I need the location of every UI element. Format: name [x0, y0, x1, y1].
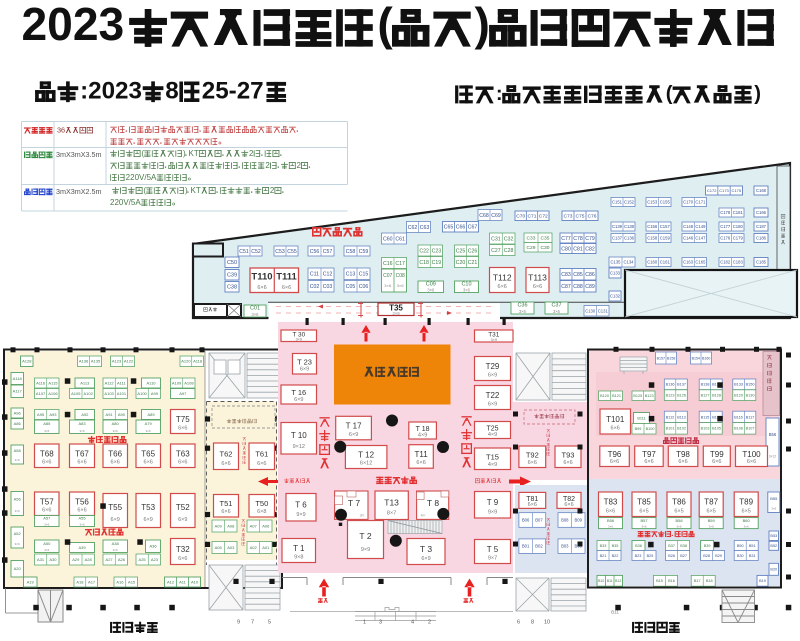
- svg-text:T 8: T 8: [427, 498, 439, 508]
- svg-text:A05: A05: [215, 545, 223, 550]
- svg-text:B133: B133: [734, 383, 743, 387]
- svg-text:C170: C170: [683, 200, 694, 205]
- svg-text:T68: T68: [40, 449, 54, 458]
- svg-text:T22: T22: [486, 391, 500, 400]
- svg-text:T87: T87: [704, 498, 718, 507]
- svg-text:9: 9: [237, 620, 240, 626]
- svg-text:T89: T89: [739, 498, 753, 507]
- svg-text:6×6: 6×6: [42, 460, 51, 466]
- svg-text:C134: C134: [623, 260, 634, 265]
- svg-text:B117: B117: [746, 415, 755, 419]
- svg-text:): ): [754, 83, 761, 105]
- svg-text:C63: C63: [420, 225, 430, 231]
- svg-text:3mX3mX2.5m: 3mX3mX2.5m: [56, 187, 102, 196]
- svg-text:2: 2: [265, 161, 270, 170]
- svg-text:C62: C62: [408, 225, 418, 231]
- svg-text:T 7: T 7: [348, 498, 360, 508]
- svg-text:5: 5: [268, 620, 271, 626]
- svg-text:C138: C138: [624, 224, 635, 229]
- svg-text:A100: A100: [137, 391, 147, 396]
- svg-text:6×6: 6×6: [564, 502, 573, 508]
- svg-text:B158: B158: [667, 356, 675, 360]
- svg-text:A31: A31: [37, 557, 45, 562]
- svg-text:T 2: T 2: [359, 531, 371, 541]
- svg-text:9×9: 9×9: [488, 509, 497, 515]
- svg-text:B157: B157: [657, 356, 665, 360]
- svg-text:C178: C178: [720, 210, 731, 215]
- svg-text:C77: C77: [561, 236, 571, 242]
- svg-text:6×9: 6×9: [111, 517, 120, 523]
- svg-text:C168: C168: [756, 188, 767, 193]
- svg-text:A56: A56: [14, 497, 22, 502]
- svg-text:T61: T61: [255, 449, 268, 458]
- svg-text:A105: A105: [71, 391, 81, 396]
- svg-text:C161: C161: [660, 260, 671, 265]
- svg-text:A115: A115: [48, 380, 58, 385]
- svg-text:T 5: T 5: [487, 545, 499, 554]
- svg-text:B121: B121: [612, 394, 621, 398]
- svg-text:B160: B160: [702, 356, 710, 360]
- svg-text:C148: C148: [683, 224, 694, 229]
- svg-text:6×6: 6×6: [178, 425, 187, 431]
- svg-text:A108: A108: [184, 380, 194, 385]
- svg-text:T57: T57: [40, 497, 54, 506]
- svg-text:A97: A97: [179, 391, 187, 396]
- svg-text:T62: T62: [220, 449, 233, 458]
- svg-text:A136: A136: [79, 359, 89, 364]
- svg-text:C19: C19: [432, 260, 442, 266]
- svg-text:A16: A16: [116, 579, 124, 584]
- svg-text:6×6: 6×6: [178, 556, 187, 562]
- svg-text:C158: C158: [647, 236, 658, 241]
- svg-text:3×6: 3×6: [79, 429, 84, 433]
- svg-text:3×6: 3×6: [44, 548, 49, 552]
- svg-text:C31: C31: [491, 236, 501, 242]
- svg-text:T29: T29: [486, 362, 500, 371]
- svg-text:A135: A135: [91, 359, 101, 364]
- svg-text:T 1: T 1: [293, 544, 305, 553]
- svg-text:T 17: T 17: [346, 422, 362, 431]
- svg-text:B26: B26: [668, 554, 675, 558]
- svg-text:B52: B52: [770, 544, 777, 548]
- svg-text:C171: C171: [695, 200, 706, 205]
- svg-text:C03: C03: [323, 284, 333, 290]
- svg-text:C133: C133: [610, 271, 621, 276]
- svg-text:C51: C51: [239, 249, 249, 255]
- svg-text:2×9: 2×9: [392, 311, 400, 316]
- svg-text:3×6: 3×6: [771, 506, 776, 510]
- svg-text:3×9: 3×9: [491, 338, 497, 342]
- svg-text:B57: B57: [640, 518, 648, 523]
- svg-text:B120: B120: [600, 394, 609, 398]
- svg-text:C82: C82: [585, 246, 595, 252]
- svg-text:6×6: 6×6: [178, 460, 187, 466]
- svg-text:A91: A91: [106, 412, 114, 417]
- svg-text:A20: A20: [14, 566, 22, 571]
- svg-text:A03: A03: [227, 545, 235, 550]
- svg-text:A95: A95: [37, 412, 45, 417]
- svg-text:B07: B07: [535, 518, 543, 523]
- svg-text:C86: C86: [585, 272, 595, 278]
- svg-text:A57: A57: [43, 516, 51, 521]
- svg-text:3×6: 3×6: [744, 524, 749, 528]
- svg-text:C165: C165: [695, 260, 706, 265]
- svg-text:A99: A99: [151, 391, 159, 396]
- svg-text:3×6: 3×6: [608, 524, 613, 528]
- svg-text:C10: C10: [461, 281, 471, 287]
- svg-text:(: (: [666, 83, 673, 105]
- svg-text:T52: T52: [176, 503, 190, 512]
- svg-text:B129: B129: [734, 394, 743, 398]
- svg-text:C76: C76: [588, 214, 597, 220]
- svg-text:C160: C160: [647, 260, 658, 265]
- svg-text:B115: B115: [701, 415, 710, 419]
- svg-text:2: 2: [428, 620, 431, 626]
- svg-text:A55: A55: [78, 516, 86, 521]
- svg-text:25-27: 25-27: [202, 77, 264, 104]
- svg-text:3×12: 3×12: [769, 455, 776, 459]
- svg-text:C175: C175: [732, 188, 742, 193]
- svg-text:C75: C75: [576, 214, 585, 220]
- svg-text:B39: B39: [704, 544, 711, 548]
- svg-text:B08: B08: [561, 518, 569, 523]
- svg-text:A96: A96: [14, 410, 22, 415]
- svg-text:T 23: T 23: [297, 357, 312, 366]
- svg-text:C07: C07: [383, 273, 392, 279]
- svg-text:A123: A123: [112, 359, 122, 364]
- svg-text:3×6: 3×6: [79, 522, 84, 526]
- svg-text:T32: T32: [176, 545, 190, 554]
- svg-text:B31: B31: [749, 554, 756, 558]
- svg-text:C139: C139: [612, 224, 623, 229]
- svg-text:6×6: 6×6: [257, 285, 266, 291]
- svg-text:9×9: 9×9: [296, 512, 305, 518]
- svg-text:A25: A25: [139, 557, 147, 562]
- svg-text:3×6: 3×6: [15, 509, 20, 513]
- svg-text:B50: B50: [737, 544, 744, 548]
- svg-text:A50: A50: [43, 541, 51, 546]
- svg-text:9×9: 9×9: [361, 547, 370, 553]
- svg-text:C08: C08: [396, 273, 405, 279]
- svg-text:): ): [185, 186, 188, 195]
- svg-text:B100: B100: [646, 427, 655, 431]
- svg-text:6×9: 6×9: [144, 517, 153, 523]
- svg-text:A85: A85: [43, 421, 51, 426]
- svg-text:C146: C146: [683, 236, 694, 241]
- svg-text:C57: C57: [323, 249, 333, 255]
- svg-text:10: 10: [544, 620, 550, 626]
- svg-text:B33: B33: [600, 544, 607, 548]
- svg-text:6×6: 6×6: [606, 508, 615, 514]
- svg-text:A26: A26: [118, 557, 126, 562]
- svg-text:T85: T85: [637, 498, 651, 507]
- svg-text:3×6: 3×6: [553, 309, 561, 314]
- svg-text:B28: B28: [703, 554, 710, 558]
- svg-text:C20: C20: [456, 260, 466, 266]
- svg-text:T51: T51: [220, 499, 233, 508]
- svg-text:C70: C70: [516, 214, 525, 220]
- svg-text:6×6: 6×6: [416, 460, 425, 466]
- svg-text:B06: B06: [522, 518, 530, 523]
- svg-text:3: 3: [379, 620, 382, 626]
- svg-text:A58: A58: [14, 448, 22, 453]
- svg-text:A117: A117: [13, 389, 23, 394]
- svg-text:6×6: 6×6: [221, 509, 230, 515]
- svg-text:B53: B53: [770, 534, 777, 538]
- svg-text:B15: B15: [656, 579, 663, 583]
- svg-text:A28: A28: [85, 557, 93, 562]
- svg-text:3×6: 3×6: [519, 309, 527, 314]
- svg-text:T98: T98: [676, 450, 690, 459]
- svg-text:B102: B102: [677, 427, 686, 431]
- svg-text:T 16: T 16: [291, 388, 306, 397]
- svg-text:B25: B25: [647, 554, 654, 558]
- svg-text:B55: B55: [770, 496, 778, 501]
- svg-text:2: 2: [270, 186, 275, 195]
- svg-text:B18: B18: [706, 579, 713, 583]
- svg-text:C56: C56: [310, 249, 320, 255]
- svg-text:6×6: 6×6: [77, 508, 86, 514]
- svg-text:A103: A103: [104, 391, 114, 396]
- svg-text:B02: B02: [535, 544, 543, 549]
- svg-text:C147: C147: [695, 236, 706, 241]
- svg-text:(: (: [141, 149, 144, 158]
- svg-text:C15: C15: [359, 272, 369, 278]
- svg-text:C12: C12: [323, 272, 333, 278]
- svg-text:C58: C58: [346, 249, 356, 255]
- svg-text:B36: B36: [635, 544, 642, 548]
- svg-text:T53: T53: [141, 503, 155, 512]
- svg-text:B154: B154: [692, 356, 700, 360]
- svg-text:1: 1: [363, 620, 366, 626]
- svg-text:C13: C13: [346, 272, 356, 278]
- svg-text::2023: :2023: [80, 77, 142, 104]
- svg-text:6×5: 6×5: [742, 508, 751, 514]
- svg-text:C151: C151: [612, 200, 623, 205]
- svg-text:6×6: 6×6: [257, 461, 266, 467]
- svg-text:T67: T67: [75, 449, 89, 458]
- svg-text:): ): [183, 149, 186, 158]
- svg-text:B125: B125: [633, 394, 642, 398]
- svg-text:6×12: 6×12: [360, 461, 372, 467]
- svg-text:C87: C87: [561, 284, 571, 290]
- svg-text:C61: C61: [395, 236, 405, 242]
- svg-text:6×9: 6×9: [488, 372, 497, 378]
- svg-text:B11: B11: [607, 579, 613, 583]
- svg-text:A122: A122: [124, 359, 134, 364]
- svg-text:B38: B38: [680, 544, 687, 548]
- svg-text:A89: A89: [147, 412, 155, 417]
- svg-text:A07: A07: [250, 523, 258, 528]
- svg-text:B30: B30: [737, 554, 744, 558]
- svg-text:B20: B20: [770, 568, 777, 572]
- svg-text:B35: B35: [612, 544, 619, 548]
- svg-text:C180: C180: [733, 224, 744, 229]
- svg-text:6×6: 6×6: [144, 460, 153, 466]
- svg-text:8: 8: [165, 77, 178, 104]
- svg-text:3×9: 3×9: [296, 338, 302, 342]
- svg-text:C23: C23: [432, 248, 442, 254]
- svg-text:B128: B128: [712, 394, 721, 398]
- svg-text:C67: C67: [468, 225, 478, 231]
- svg-text:C28: C28: [504, 248, 514, 254]
- svg-text:B37: B37: [668, 544, 675, 548]
- svg-text:3×6: 3×6: [44, 429, 49, 433]
- svg-text:C185: C185: [756, 260, 767, 265]
- svg-text:4×9: 4×9: [418, 433, 427, 439]
- svg-text:4: 4: [411, 620, 414, 626]
- svg-text:A107: A107: [36, 391, 46, 396]
- svg-text:T 12: T 12: [358, 451, 374, 460]
- svg-text:B01: B01: [522, 544, 530, 549]
- svg-text:8: 8: [531, 620, 534, 626]
- svg-text:A29: A29: [72, 557, 80, 562]
- svg-text:C83: C83: [561, 272, 571, 278]
- svg-text:KT: KT: [189, 149, 199, 158]
- svg-text:6×9: 6×9: [349, 432, 358, 438]
- svg-text:6×5: 6×5: [707, 508, 716, 514]
- svg-text:C179: C179: [733, 236, 744, 241]
- svg-text:C29: C29: [527, 245, 536, 251]
- svg-text:A86: A86: [14, 421, 22, 426]
- svg-text:A111: A111: [117, 380, 127, 385]
- svg-text:6×5: 6×5: [639, 508, 648, 514]
- svg-text:T56: T56: [75, 497, 89, 506]
- svg-text:3×6: 3×6: [397, 283, 405, 288]
- svg-text:C79: C79: [585, 236, 595, 242]
- svg-text:C172: C172: [707, 188, 717, 193]
- svg-text:A118: A118: [193, 359, 203, 364]
- svg-text:A120: A120: [181, 359, 191, 364]
- svg-text:3×6: 3×6: [384, 283, 392, 288]
- svg-text:C39: C39: [227, 273, 237, 279]
- svg-text:8×7: 8×7: [387, 510, 396, 516]
- svg-text:3×6: 3×6: [676, 524, 681, 528]
- svg-text:B60: B60: [743, 518, 751, 523]
- svg-text:3×6: 3×6: [427, 288, 435, 293]
- svg-text:C38: C38: [227, 285, 237, 291]
- svg-text:C36: C36: [517, 303, 527, 309]
- svg-text:6×9: 6×9: [294, 397, 303, 403]
- svg-text:T112: T112: [493, 273, 512, 283]
- svg-text:B99: B99: [635, 427, 642, 431]
- svg-text:T97: T97: [642, 450, 656, 459]
- svg-text:A118: A118: [13, 376, 23, 381]
- svg-text:6×6: 6×6: [712, 459, 721, 465]
- svg-text:A01: A01: [262, 545, 270, 550]
- svg-text:6: 6: [517, 620, 520, 626]
- svg-text:9×8: 9×8: [294, 554, 303, 560]
- svg-text:9×7: 9×7: [488, 555, 497, 561]
- svg-text:6×9: 6×9: [300, 367, 309, 373]
- svg-text:T92: T92: [526, 450, 539, 459]
- svg-text:C135: C135: [610, 260, 621, 265]
- svg-text:): ): [475, 0, 490, 50]
- svg-text:B23: B23: [635, 554, 642, 558]
- svg-text:T 3: T 3: [420, 544, 432, 554]
- svg-text:C05: C05: [346, 284, 356, 290]
- svg-text:B112: B112: [666, 415, 675, 419]
- svg-text:220V/5A: 220V/5A: [126, 173, 157, 182]
- svg-text:C85: C85: [573, 272, 583, 278]
- svg-text:3mX3mX3.5m: 3mX3mX3.5m: [56, 150, 102, 159]
- svg-text:A128: A128: [22, 359, 32, 364]
- svg-text:B29: B29: [715, 554, 722, 558]
- svg-text:C73: C73: [564, 214, 573, 220]
- svg-text:6×6: 6×6: [111, 460, 120, 466]
- svg-text:B107: B107: [746, 427, 755, 431]
- svg-text:6×6: 6×6: [747, 459, 756, 465]
- svg-text:C25: C25: [456, 248, 466, 254]
- svg-text:B138: B138: [701, 383, 710, 387]
- svg-text:C131: C131: [598, 308, 609, 313]
- svg-text:C166: C166: [756, 210, 767, 215]
- svg-text:C81: C81: [573, 246, 583, 252]
- svg-text:T 6: T 6: [295, 500, 307, 509]
- svg-text:C02: C02: [310, 284, 320, 290]
- svg-text:6×6: 6×6: [528, 502, 537, 508]
- svg-text:B10: B10: [598, 579, 604, 583]
- svg-text:2: 2: [297, 161, 302, 170]
- svg-text:C186: C186: [756, 236, 767, 241]
- svg-text:C88: C88: [573, 284, 583, 290]
- svg-text:(: (: [143, 186, 146, 195]
- svg-text:C53: C53: [275, 249, 285, 255]
- svg-text:6×9: 6×9: [421, 556, 430, 562]
- svg-text:B27: B27: [680, 554, 687, 558]
- svg-text:B09: B09: [574, 518, 582, 523]
- svg-text:A102: A102: [84, 391, 94, 396]
- svg-text:3×6: 3×6: [146, 429, 151, 433]
- svg-text:C80: C80: [561, 246, 571, 252]
- svg-text:A110: A110: [146, 380, 156, 385]
- svg-text:C18: C18: [419, 260, 429, 266]
- svg-text:B150: B150: [746, 383, 755, 387]
- svg-text:B127: B127: [701, 394, 710, 398]
- svg-text:A93: A93: [49, 412, 57, 417]
- svg-text:T86: T86: [672, 498, 686, 507]
- svg-text:C01: C01: [250, 306, 260, 312]
- svg-text:B56: B56: [769, 432, 777, 437]
- svg-text:B16: B16: [668, 579, 675, 583]
- svg-text:6×6: 6×6: [528, 460, 537, 466]
- svg-text:T15: T15: [486, 452, 499, 461]
- svg-text:A116: A116: [36, 380, 46, 385]
- svg-text:C156: C156: [647, 224, 658, 229]
- svg-text:A17: A17: [88, 579, 96, 584]
- svg-text:KT: KT: [191, 186, 201, 195]
- svg-text:T 9: T 9: [487, 498, 499, 507]
- svg-text:A52: A52: [14, 531, 22, 536]
- svg-text:C22: C22: [419, 248, 429, 254]
- svg-text:6×6: 6×6: [498, 284, 507, 290]
- svg-text:C72: C72: [539, 214, 548, 220]
- svg-text:6×6: 6×6: [644, 459, 653, 465]
- svg-text:T50: T50: [255, 499, 268, 508]
- svg-text:T66: T66: [108, 449, 122, 458]
- svg-text:C152: C152: [624, 200, 635, 205]
- svg-text:T65: T65: [141, 449, 155, 458]
- svg-text:A90: A90: [118, 412, 126, 417]
- svg-text:6×6: 6×6: [221, 461, 230, 467]
- svg-text:C181: C181: [733, 210, 744, 215]
- svg-text:T83: T83: [604, 498, 618, 507]
- svg-text:2: 2: [249, 149, 254, 158]
- svg-text:C30: C30: [541, 245, 550, 251]
- svg-text:C37: C37: [551, 303, 561, 309]
- svg-text:3×9: 3×9: [15, 458, 20, 462]
- svg-text:C89: C89: [585, 284, 595, 290]
